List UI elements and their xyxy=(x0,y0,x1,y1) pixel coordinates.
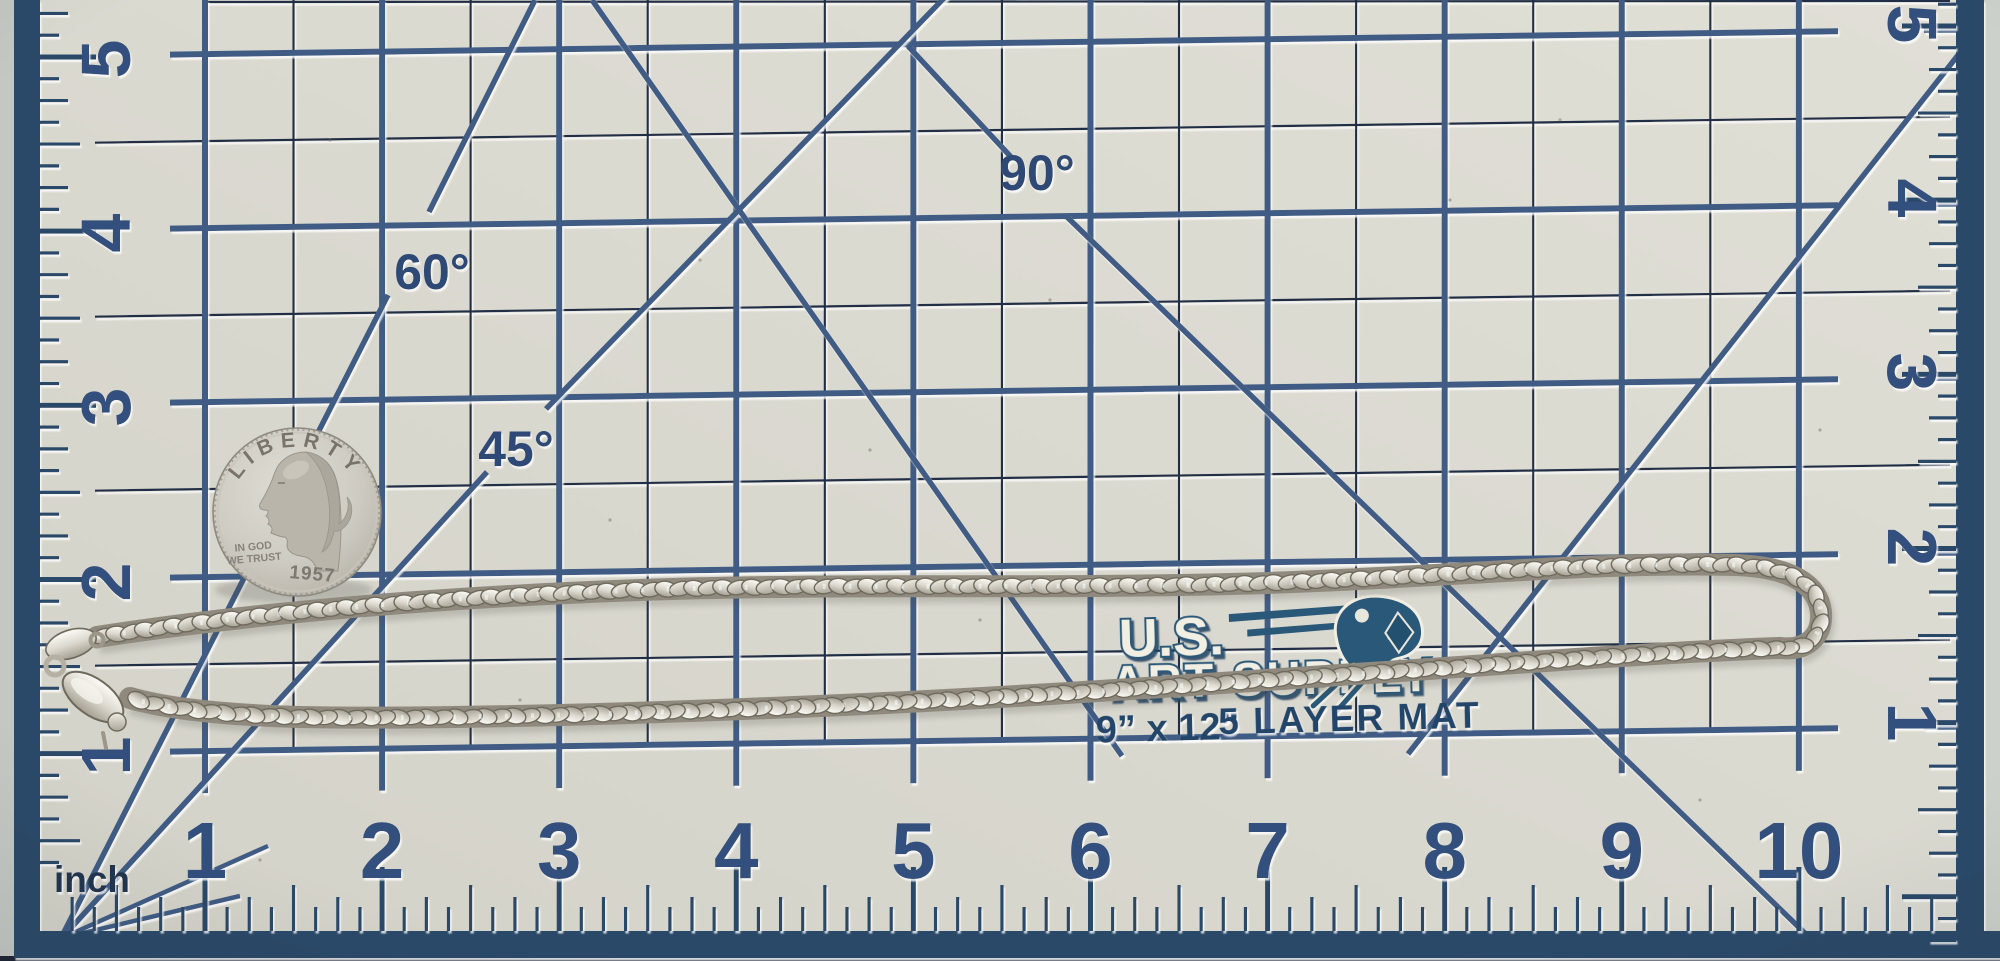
photo-scene: 12345678910 54321 54321 60° 45° 90° inch… xyxy=(0,0,2000,961)
photo-vignette xyxy=(0,0,2000,961)
photo-cutting-mat-with-chain: 12345678910 54321 54321 60° 45° 90° inch… xyxy=(0,0,2000,961)
